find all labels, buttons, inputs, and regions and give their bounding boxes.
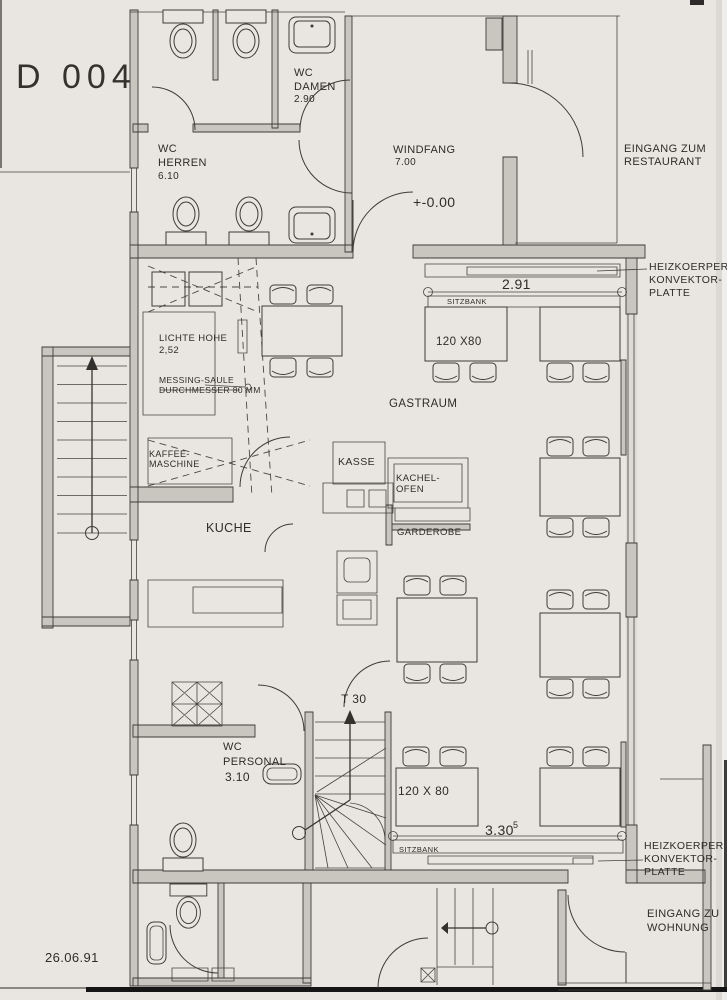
label-wc-personal-area: 3.10 — [225, 770, 250, 784]
label-heater-bottom-3: PLATTE — [644, 866, 685, 878]
label-gastraum: GASTRAUM — [389, 398, 457, 410]
label-column-2: DURCHMESSER 80 MM — [159, 385, 261, 395]
sheet-number: D 004 — [16, 58, 137, 96]
label-table-size-bottom: 120 X 80 — [398, 784, 449, 798]
chair — [583, 679, 609, 698]
scan-speck-top — [690, 0, 704, 5]
chair — [307, 285, 333, 304]
exterior-steps — [437, 888, 493, 985]
sheet-date: 26.06.91 — [45, 950, 99, 965]
label-wc-herren-1: WC — [158, 143, 177, 155]
label-kasse: KASSE — [338, 456, 375, 468]
exterior-steps-arrow-head — [441, 922, 448, 934]
label-wc-herren-area: 6.10 — [158, 171, 179, 182]
chair — [270, 285, 296, 304]
stair-left-arrow-head — [86, 356, 98, 370]
sink-basin-kitchen — [344, 558, 370, 582]
stair-center-arrow-head — [344, 710, 356, 724]
label-wc-herren-2: HERREN — [158, 157, 207, 169]
sink-icon — [289, 17, 335, 53]
toilet-icon — [170, 884, 207, 928]
dim-bottom-sup: 5 — [513, 820, 518, 830]
label-bench-bottom: SITZBANK — [399, 845, 439, 854]
exterior-steps-circle — [486, 922, 498, 934]
chair — [470, 363, 496, 382]
toilet-icon — [226, 10, 266, 58]
label-heater-top-3: PLATTE — [649, 287, 690, 299]
chair — [547, 679, 573, 698]
label-entrance-restaurant-1: EINGANG ZUM — [624, 143, 706, 155]
label-coffee-1: KAFFEE- — [149, 449, 190, 459]
floor-plan-drawing: D 004 26.06.91 WC HERREN 6.10 WC DAMEN 2… — [0, 0, 727, 1000]
chair — [547, 747, 573, 766]
toilet-icon — [229, 197, 269, 245]
label-wc-personal-2: PERSONAL — [223, 756, 286, 768]
chair — [547, 518, 573, 537]
label-bench-top: SITZBANK — [447, 297, 487, 306]
label-heater-top-1: HEIZKOERPER — [649, 261, 727, 273]
label-heater-top-2: KONVEKTOR- — [649, 274, 722, 286]
chair — [583, 590, 609, 609]
label-windfang: WINDFANG — [393, 144, 455, 156]
scan-border-bottom-faint — [0, 987, 86, 989]
label-entrance-wohnung-2: WOHNUNG — [647, 922, 709, 934]
toilet-icon — [163, 823, 203, 871]
label-wc-damen-2: DAMEN — [294, 81, 336, 93]
chair — [547, 437, 573, 456]
label-kueche: KUCHE — [206, 521, 252, 535]
label-windfang-area: 7.00 — [395, 157, 416, 168]
chair — [440, 664, 466, 683]
chair — [403, 747, 429, 766]
scan-border-bottom — [86, 987, 727, 992]
chair — [583, 437, 609, 456]
label-entrance-restaurant-2: RESTAURANT — [624, 156, 702, 168]
chair — [404, 576, 430, 595]
chair — [307, 358, 333, 377]
chair — [440, 747, 466, 766]
dim-top-value: 2.91 — [502, 276, 531, 292]
label-wc-personal-1: WC — [223, 741, 242, 753]
dim-bottom-value: 3.30 — [485, 822, 514, 838]
label-level-marker: +-0.00 — [413, 194, 456, 210]
sink-icon — [289, 207, 335, 243]
storage-box-right — [189, 272, 222, 306]
chair — [433, 363, 459, 382]
label-heater-bottom-2: KONVEKTOR- — [644, 853, 717, 865]
toilet-icon — [163, 10, 203, 58]
label-stove-1: KACHEL- — [396, 473, 440, 484]
storage-box-left — [152, 272, 185, 306]
chair — [583, 518, 609, 537]
scan-edge-left — [0, 0, 2, 168]
chair — [583, 747, 609, 766]
chair — [440, 576, 466, 595]
chair — [547, 363, 573, 382]
label-wc-damen-area: 2.90 — [294, 94, 315, 105]
label-door-t30: T 30 — [341, 692, 366, 706]
label-entrance-wohnung-1: EINGANG ZU — [647, 908, 719, 920]
label-clear-height-2: 2,52 — [159, 345, 179, 356]
toilet-icon — [166, 197, 206, 245]
chair — [547, 590, 573, 609]
scanned-floor-plan-sheet: D 004 26.06.91 WC HERREN 6.10 WC DAMEN 2… — [0, 0, 727, 1000]
label-stove-2: OFEN — [396, 484, 424, 495]
label-heater-bottom-1: HEIZKOERPER — [644, 840, 724, 852]
label-garderobe: GARDEROBE — [397, 527, 461, 538]
chair — [270, 358, 296, 377]
label-coffee-2: MASCHINE — [149, 459, 200, 469]
chair — [404, 664, 430, 683]
label-wc-damen-1: WC — [294, 67, 313, 79]
stair-center-start-circle — [293, 827, 306, 840]
label-clear-height-1: LICHTE HOHE — [159, 333, 227, 344]
label-table-size-top: 120 X80 — [436, 336, 482, 348]
chair — [583, 363, 609, 382]
label-column-1: MESSING-SAULE — [159, 375, 234, 385]
